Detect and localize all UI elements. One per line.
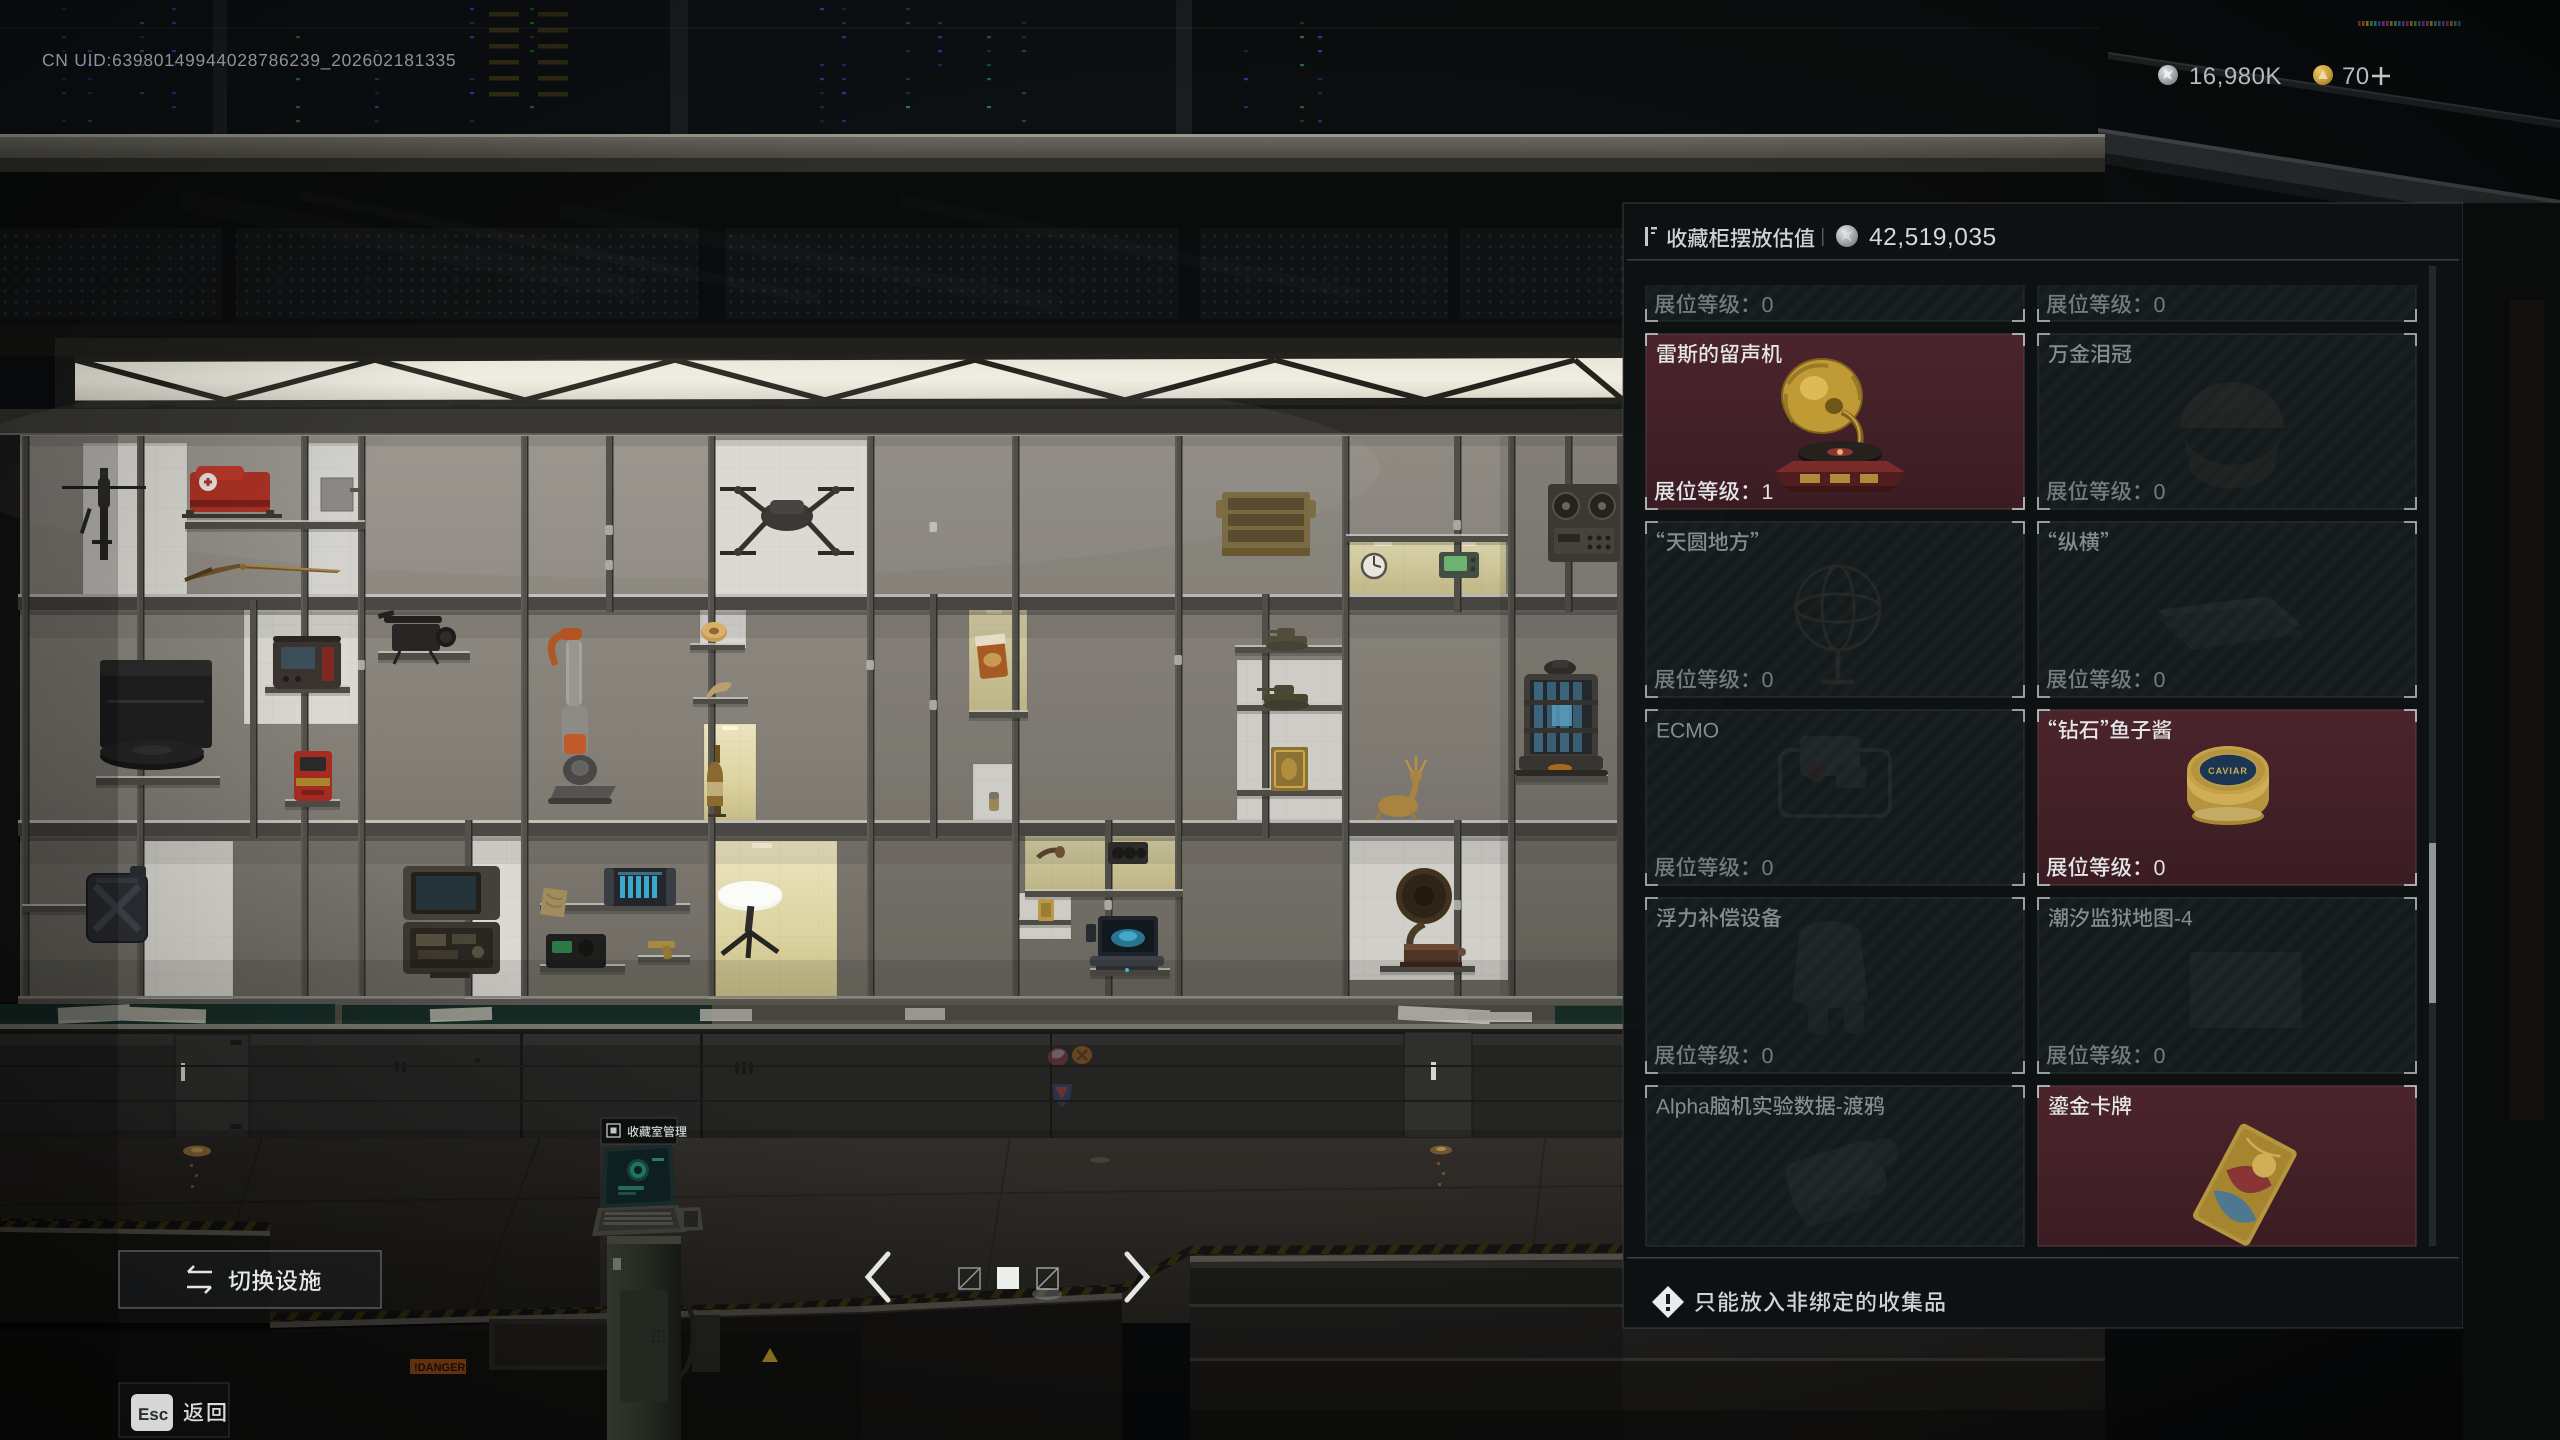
svg-text:CAVIAR: CAVIAR — [2208, 766, 2248, 776]
